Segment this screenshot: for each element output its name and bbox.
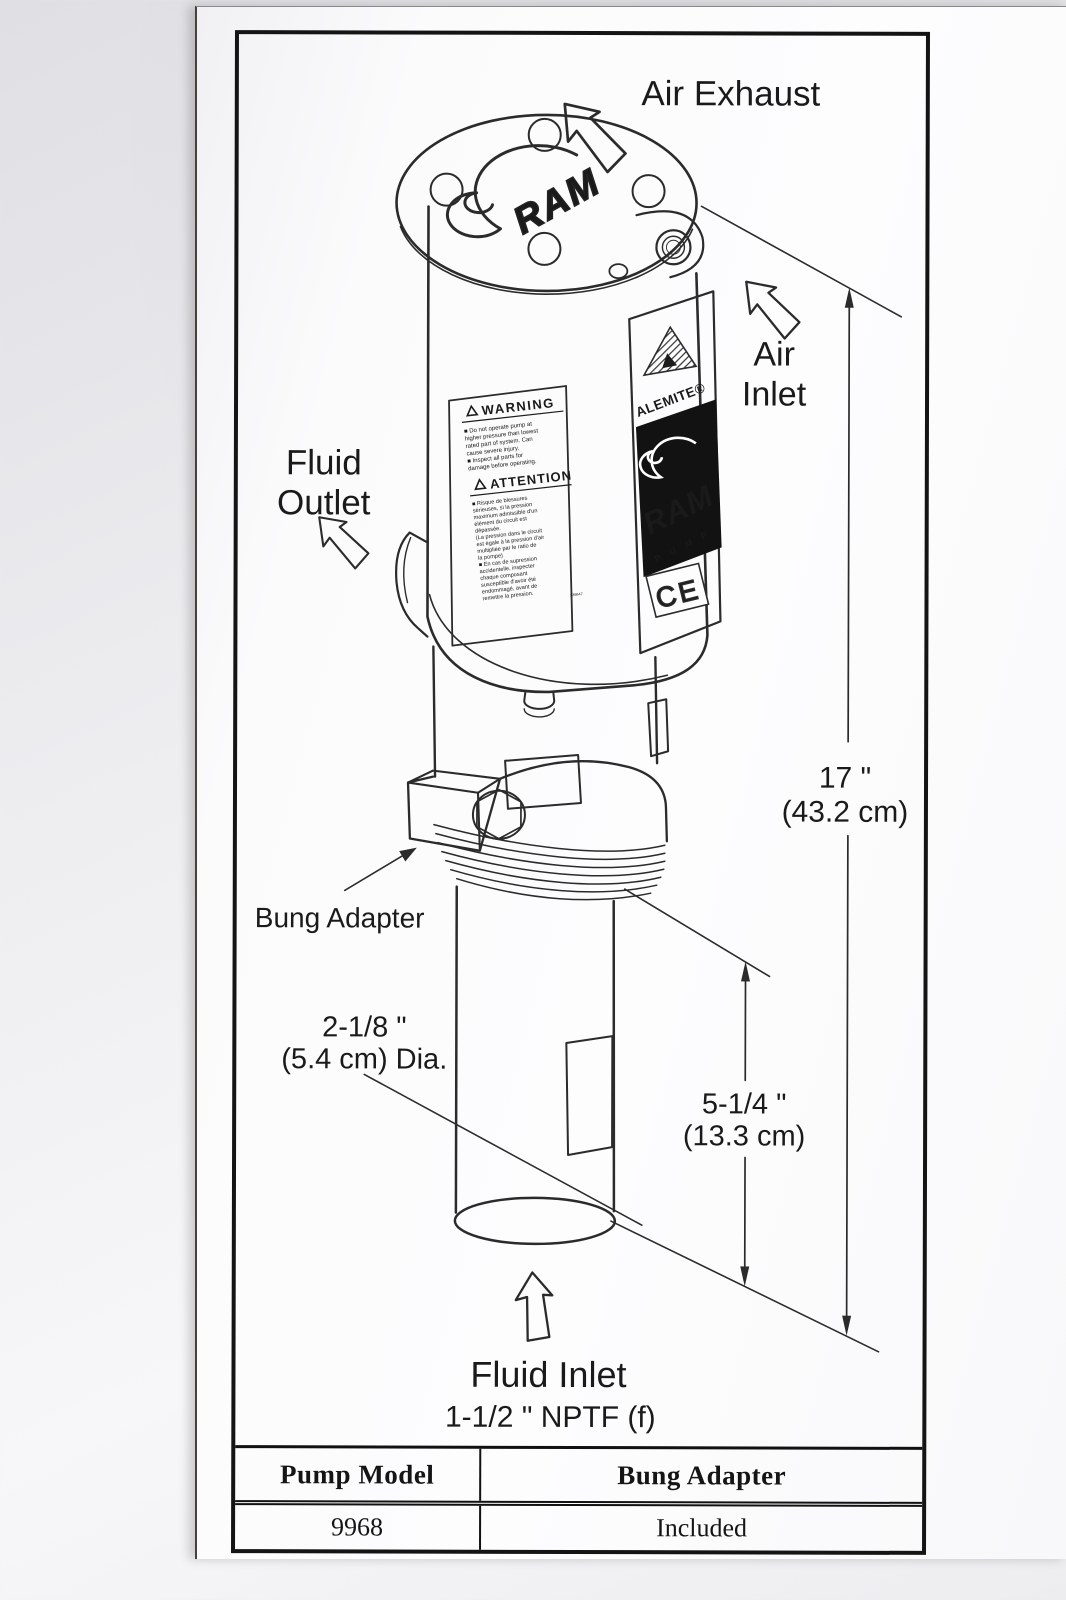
bung-adapter: [408, 761, 667, 900]
bung-lug: [408, 771, 500, 793]
air-inlet-arrow-icon: [733, 270, 806, 345]
tube-diameter-callout: 2-1/8 " (5.4 cm) Dia.: [281, 1011, 643, 1225]
warning-text-en: ■ Do not operate pump at higher pressure…: [464, 421, 542, 472]
height-dimension-line: 17 " (43.2 cm): [780, 288, 909, 1336]
warning-label: WARNING ■ Do not operate pump at higher …: [448, 386, 586, 646]
fluid-inlet-label: Fluid Inlet: [470, 1354, 626, 1395]
pump-diagram: 17 " (43.2 cm) 5-1/4 " (13.3 cm) 2-1/8 "…: [235, 34, 926, 1450]
height-dimension-metric: (43.2 cm): [782, 796, 909, 829]
tube-window: [566, 1036, 612, 1155]
warning-title-en: WARNING: [481, 395, 556, 418]
attention-triangle-icon: [474, 479, 485, 489]
fluid-outlet-port: [396, 533, 428, 637]
paper-sheet: 17 " (43.2 cm) 5-1/4 " (13.3 cm) 2-1/8 "…: [195, 6, 1066, 1559]
pump-model-header: Pump Model: [235, 1448, 481, 1501]
bung-adapter-header: Bung Adapter: [481, 1449, 922, 1502]
alemite-triangle-icon: [644, 327, 696, 375]
bung-adapter-value: Included: [481, 1506, 922, 1551]
height-dimension-value: 17 ": [819, 762, 871, 795]
scanned-page-photo: { "diagram": { "labels": { "air_exhaust"…: [0, 0, 1066, 1600]
air-inlet-label-line2: Inlet: [742, 375, 807, 413]
warning-text-fr: ■ Risque de blessures sérieuses, si la p…: [472, 494, 551, 602]
warning-triangle-icon: [466, 406, 477, 416]
tube-bottom: [455, 1198, 615, 1244]
spec-table: Pump Model Bung Adapter 9968 Included: [235, 1445, 922, 1551]
label-part-number: 339847: [570, 592, 583, 597]
fluid-outlet-label-line1: Fluid: [286, 443, 362, 482]
fluid-inlet-thread-label: 1-1/2 " NPTF (f): [445, 1401, 656, 1435]
tube-diameter-metric: (5.4 cm) Dia.: [281, 1043, 447, 1075]
body-nub: [524, 692, 554, 717]
bung-adapter-label: Bung Adapter: [255, 902, 425, 933]
warning-title-fr: ATTENTION: [489, 468, 573, 492]
fluid-outlet-label-line2: Outlet: [277, 483, 371, 522]
lower-tube-dimension-line: 5-1/4 " (13.3 cm): [682, 961, 805, 1286]
spec-table-header-row: Pump Model Bung Adapter: [235, 1448, 922, 1507]
bung-threads: [434, 825, 665, 900]
lower-tube-dimension-value: 5-1/4 ": [702, 1088, 787, 1120]
air-exhaust-label: Air Exhaust: [641, 74, 820, 113]
ram-logo-top: RAM: [507, 161, 608, 242]
tube-diameter-value: 2-1/8 ": [322, 1011, 407, 1043]
bolt-hole: [431, 174, 463, 206]
pump-model-value: 9968: [235, 1505, 481, 1550]
air-inlet-label-line1: Air: [753, 335, 795, 373]
brand-panel: ALEMITE® RAM P U M P CE: [633, 327, 722, 617]
suction-tube: [455, 887, 616, 1244]
mid-tube: [433, 647, 668, 810]
fluid-inlet-arrow-icon: [514, 1271, 555, 1341]
side-tab: [648, 699, 668, 756]
bung-adapter-callout: Bung Adapter: [255, 842, 425, 934]
bolt-hole: [633, 175, 665, 207]
bung-hex-bolt: [473, 790, 525, 839]
pump-top-cap: RAM: [396, 115, 703, 295]
spec-table-data-row: 9968 Included: [235, 1505, 922, 1551]
lower-tube-dimension-metric: (13.3 cm): [683, 1120, 806, 1152]
vent-fitting: [609, 264, 627, 278]
front-tab: [505, 755, 581, 809]
diagram-frame: 17 " (43.2 cm) 5-1/4 " (13.3 cm) 2-1/8 "…: [231, 30, 930, 1555]
